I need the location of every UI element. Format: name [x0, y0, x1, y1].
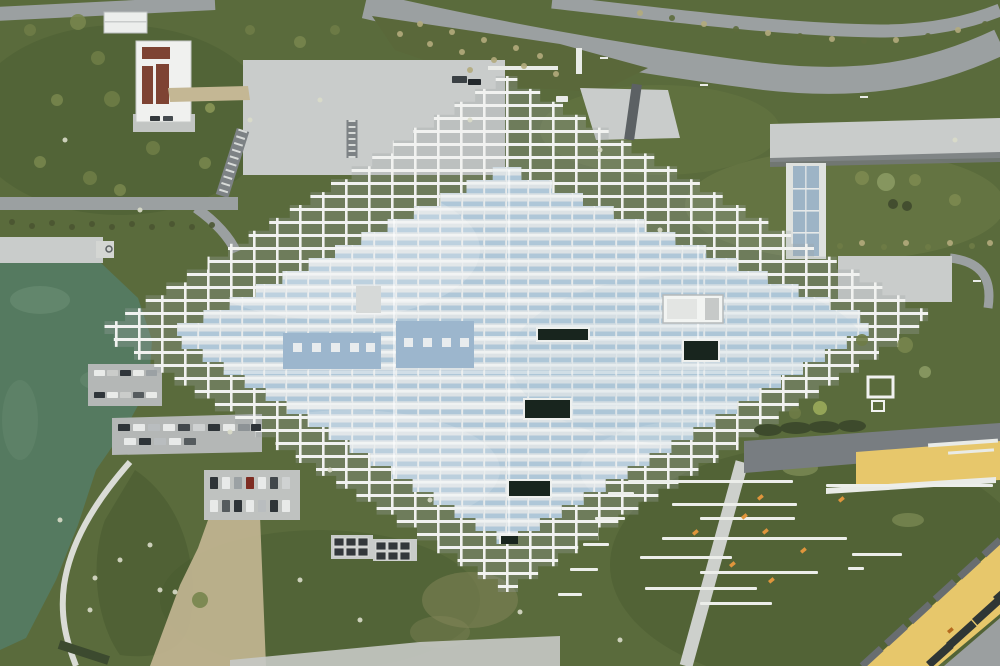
shrub — [669, 15, 675, 21]
shrub — [330, 25, 340, 35]
glass-row-highlight — [160, 336, 890, 339]
aerial-photo-stage: Top-down aerial photograph of a large di… — [0, 0, 1000, 666]
waste-bin — [388, 552, 398, 560]
shrub — [34, 156, 46, 168]
shrub — [114, 184, 126, 196]
shrub — [491, 57, 497, 63]
car — [270, 477, 278, 489]
car — [468, 79, 481, 85]
shrub — [903, 240, 909, 246]
shrub — [109, 224, 115, 230]
shrub — [129, 221, 135, 227]
bench-strip — [700, 517, 795, 520]
car — [556, 96, 568, 102]
car — [146, 370, 157, 376]
atrium-hatch — [350, 343, 359, 352]
bench-strip — [662, 537, 847, 540]
shrub — [893, 37, 899, 43]
shrub — [9, 219, 15, 225]
shrub — [189, 224, 195, 230]
car — [234, 477, 242, 489]
car — [452, 76, 467, 83]
shrub — [397, 31, 403, 37]
solar-panels — [142, 47, 170, 59]
glass-row-highlight — [160, 300, 890, 303]
car — [139, 438, 151, 445]
shrub — [199, 157, 211, 169]
stone — [468, 118, 473, 123]
bench-strip — [700, 571, 818, 574]
bench-strip — [848, 567, 864, 570]
car — [222, 477, 230, 489]
stone — [328, 468, 333, 473]
stone — [148, 543, 153, 548]
shrub — [29, 223, 35, 229]
shrub — [947, 240, 953, 246]
road-dash — [700, 84, 708, 86]
stone — [298, 578, 303, 583]
car — [124, 438, 136, 445]
skylight — [683, 340, 719, 361]
atrium-hatch — [460, 338, 469, 347]
shrub — [855, 171, 869, 185]
aerial-photo — [0, 0, 1000, 666]
car — [148, 424, 160, 431]
shrub — [169, 221, 175, 227]
waste-bin — [346, 548, 356, 556]
atrium-hatch — [312, 343, 321, 352]
stone — [228, 430, 233, 435]
car — [282, 477, 290, 489]
stone — [173, 590, 178, 595]
shrub — [521, 63, 527, 69]
car — [107, 392, 118, 398]
bench-strip — [852, 553, 902, 556]
atrium-hatch — [423, 338, 432, 347]
car — [251, 424, 261, 431]
waste-bin — [358, 548, 368, 556]
shrub — [949, 194, 961, 206]
shrub — [83, 171, 97, 185]
stone — [658, 228, 663, 233]
shrub — [888, 199, 898, 209]
atrium-hatch — [404, 338, 413, 347]
shrub — [467, 67, 473, 73]
hedge — [780, 422, 812, 434]
stone — [118, 558, 123, 563]
upper-right-plaza — [770, 118, 1000, 167]
car — [169, 438, 181, 445]
waste-bin — [388, 542, 398, 550]
bench-strip — [628, 480, 793, 483]
car — [210, 477, 218, 489]
shrub — [987, 240, 993, 246]
atrium-hatch — [366, 343, 375, 352]
waste-bin — [334, 548, 344, 556]
shrub — [70, 14, 86, 30]
atrium-hatch — [331, 343, 340, 352]
shrub — [789, 407, 801, 419]
stone — [58, 518, 63, 523]
bench-strip — [608, 492, 634, 495]
skylight — [524, 399, 571, 419]
waste-bin — [376, 542, 386, 550]
shrub — [797, 33, 803, 39]
shrub — [925, 33, 931, 39]
stone — [63, 138, 68, 143]
shrub — [459, 49, 465, 55]
glass-row-highlight — [160, 371, 890, 374]
shrub — [192, 592, 208, 608]
shrub — [294, 36, 306, 48]
car — [246, 500, 254, 512]
car — [133, 392, 144, 398]
shrub — [51, 94, 63, 106]
car — [178, 424, 190, 431]
hedge — [754, 424, 782, 436]
car — [193, 424, 205, 431]
shrub — [881, 244, 887, 250]
car — [238, 424, 250, 431]
shrub — [537, 53, 543, 59]
bench-strip — [640, 556, 732, 559]
shrub — [856, 334, 868, 346]
waste-bin — [334, 538, 344, 546]
car — [184, 438, 196, 445]
stone — [428, 498, 433, 503]
stone — [518, 610, 523, 615]
shrub — [417, 21, 423, 27]
shrub — [24, 24, 36, 36]
shrub — [861, 38, 867, 44]
skylight — [537, 328, 589, 341]
car — [120, 392, 131, 398]
shrub — [49, 220, 55, 226]
bench-strip — [570, 568, 598, 571]
waste-bin — [358, 538, 368, 546]
stone — [358, 618, 363, 623]
gravel-path — [168, 86, 250, 102]
stone — [953, 138, 958, 143]
waste-bin — [400, 542, 410, 550]
car — [150, 116, 160, 121]
shrub — [733, 26, 739, 32]
shrub — [149, 224, 155, 230]
stone — [248, 118, 253, 123]
quay — [0, 237, 103, 263]
waste-bin — [346, 538, 356, 546]
shrub — [637, 10, 643, 16]
stone — [88, 608, 93, 613]
stone — [598, 148, 603, 153]
bench-strip — [595, 517, 625, 520]
shrub — [765, 30, 771, 36]
car — [208, 424, 220, 431]
shrub — [553, 71, 559, 77]
shrub — [245, 25, 255, 35]
shrub — [837, 243, 843, 249]
shrub — [481, 37, 487, 43]
car — [234, 500, 242, 512]
bench-strip — [645, 587, 757, 590]
shrub — [209, 222, 215, 228]
bench-strip — [672, 503, 797, 506]
shrub — [969, 243, 975, 249]
shrub — [91, 51, 105, 65]
shrub — [925, 244, 931, 250]
shrub — [513, 45, 519, 51]
shrub — [449, 29, 455, 35]
bench-strip — [826, 484, 993, 487]
stone — [618, 638, 623, 643]
car — [94, 370, 105, 376]
car — [120, 370, 131, 376]
shrub — [955, 27, 961, 33]
shrub — [877, 173, 895, 191]
car — [107, 370, 118, 376]
shrub — [897, 337, 913, 353]
utility-shed — [104, 12, 147, 33]
car — [163, 424, 175, 431]
shrub — [902, 201, 912, 211]
shrub — [104, 91, 120, 107]
atrium-hatch — [293, 343, 302, 352]
shrub — [859, 240, 865, 246]
stone — [158, 588, 163, 593]
car — [210, 500, 218, 512]
car — [94, 392, 105, 398]
skylight — [508, 480, 551, 497]
atrium-hatch — [442, 338, 451, 347]
stone — [93, 576, 98, 581]
shrub — [919, 366, 931, 378]
shrub — [89, 221, 95, 227]
stone — [138, 208, 143, 213]
shrub — [69, 224, 75, 230]
road-dash — [860, 96, 868, 98]
shrub — [701, 21, 707, 27]
car — [154, 438, 166, 445]
shrub — [829, 36, 835, 42]
car — [146, 392, 157, 398]
shrub — [427, 41, 433, 47]
car — [133, 370, 144, 376]
bench-strip — [700, 602, 772, 605]
stone — [318, 98, 323, 103]
car — [246, 477, 254, 489]
car — [270, 500, 278, 512]
road-dash — [600, 57, 608, 59]
shrub — [982, 21, 988, 27]
car — [258, 477, 266, 489]
car — [163, 116, 173, 121]
car — [258, 500, 266, 512]
waste-bin — [376, 552, 386, 560]
waste-bin — [400, 552, 410, 560]
bench-strip — [583, 543, 609, 546]
car — [282, 500, 290, 512]
car — [133, 424, 145, 431]
road-dash — [973, 280, 981, 282]
roof-hatch — [356, 286, 381, 313]
shrub — [813, 401, 827, 415]
shrub — [909, 174, 921, 186]
car — [222, 500, 230, 512]
shrub — [146, 141, 160, 155]
shrub — [205, 103, 215, 113]
bench-strip — [558, 593, 582, 596]
hedge — [808, 421, 840, 433]
car — [118, 424, 130, 431]
rooftop-box — [663, 295, 723, 323]
hedge — [838, 420, 866, 432]
